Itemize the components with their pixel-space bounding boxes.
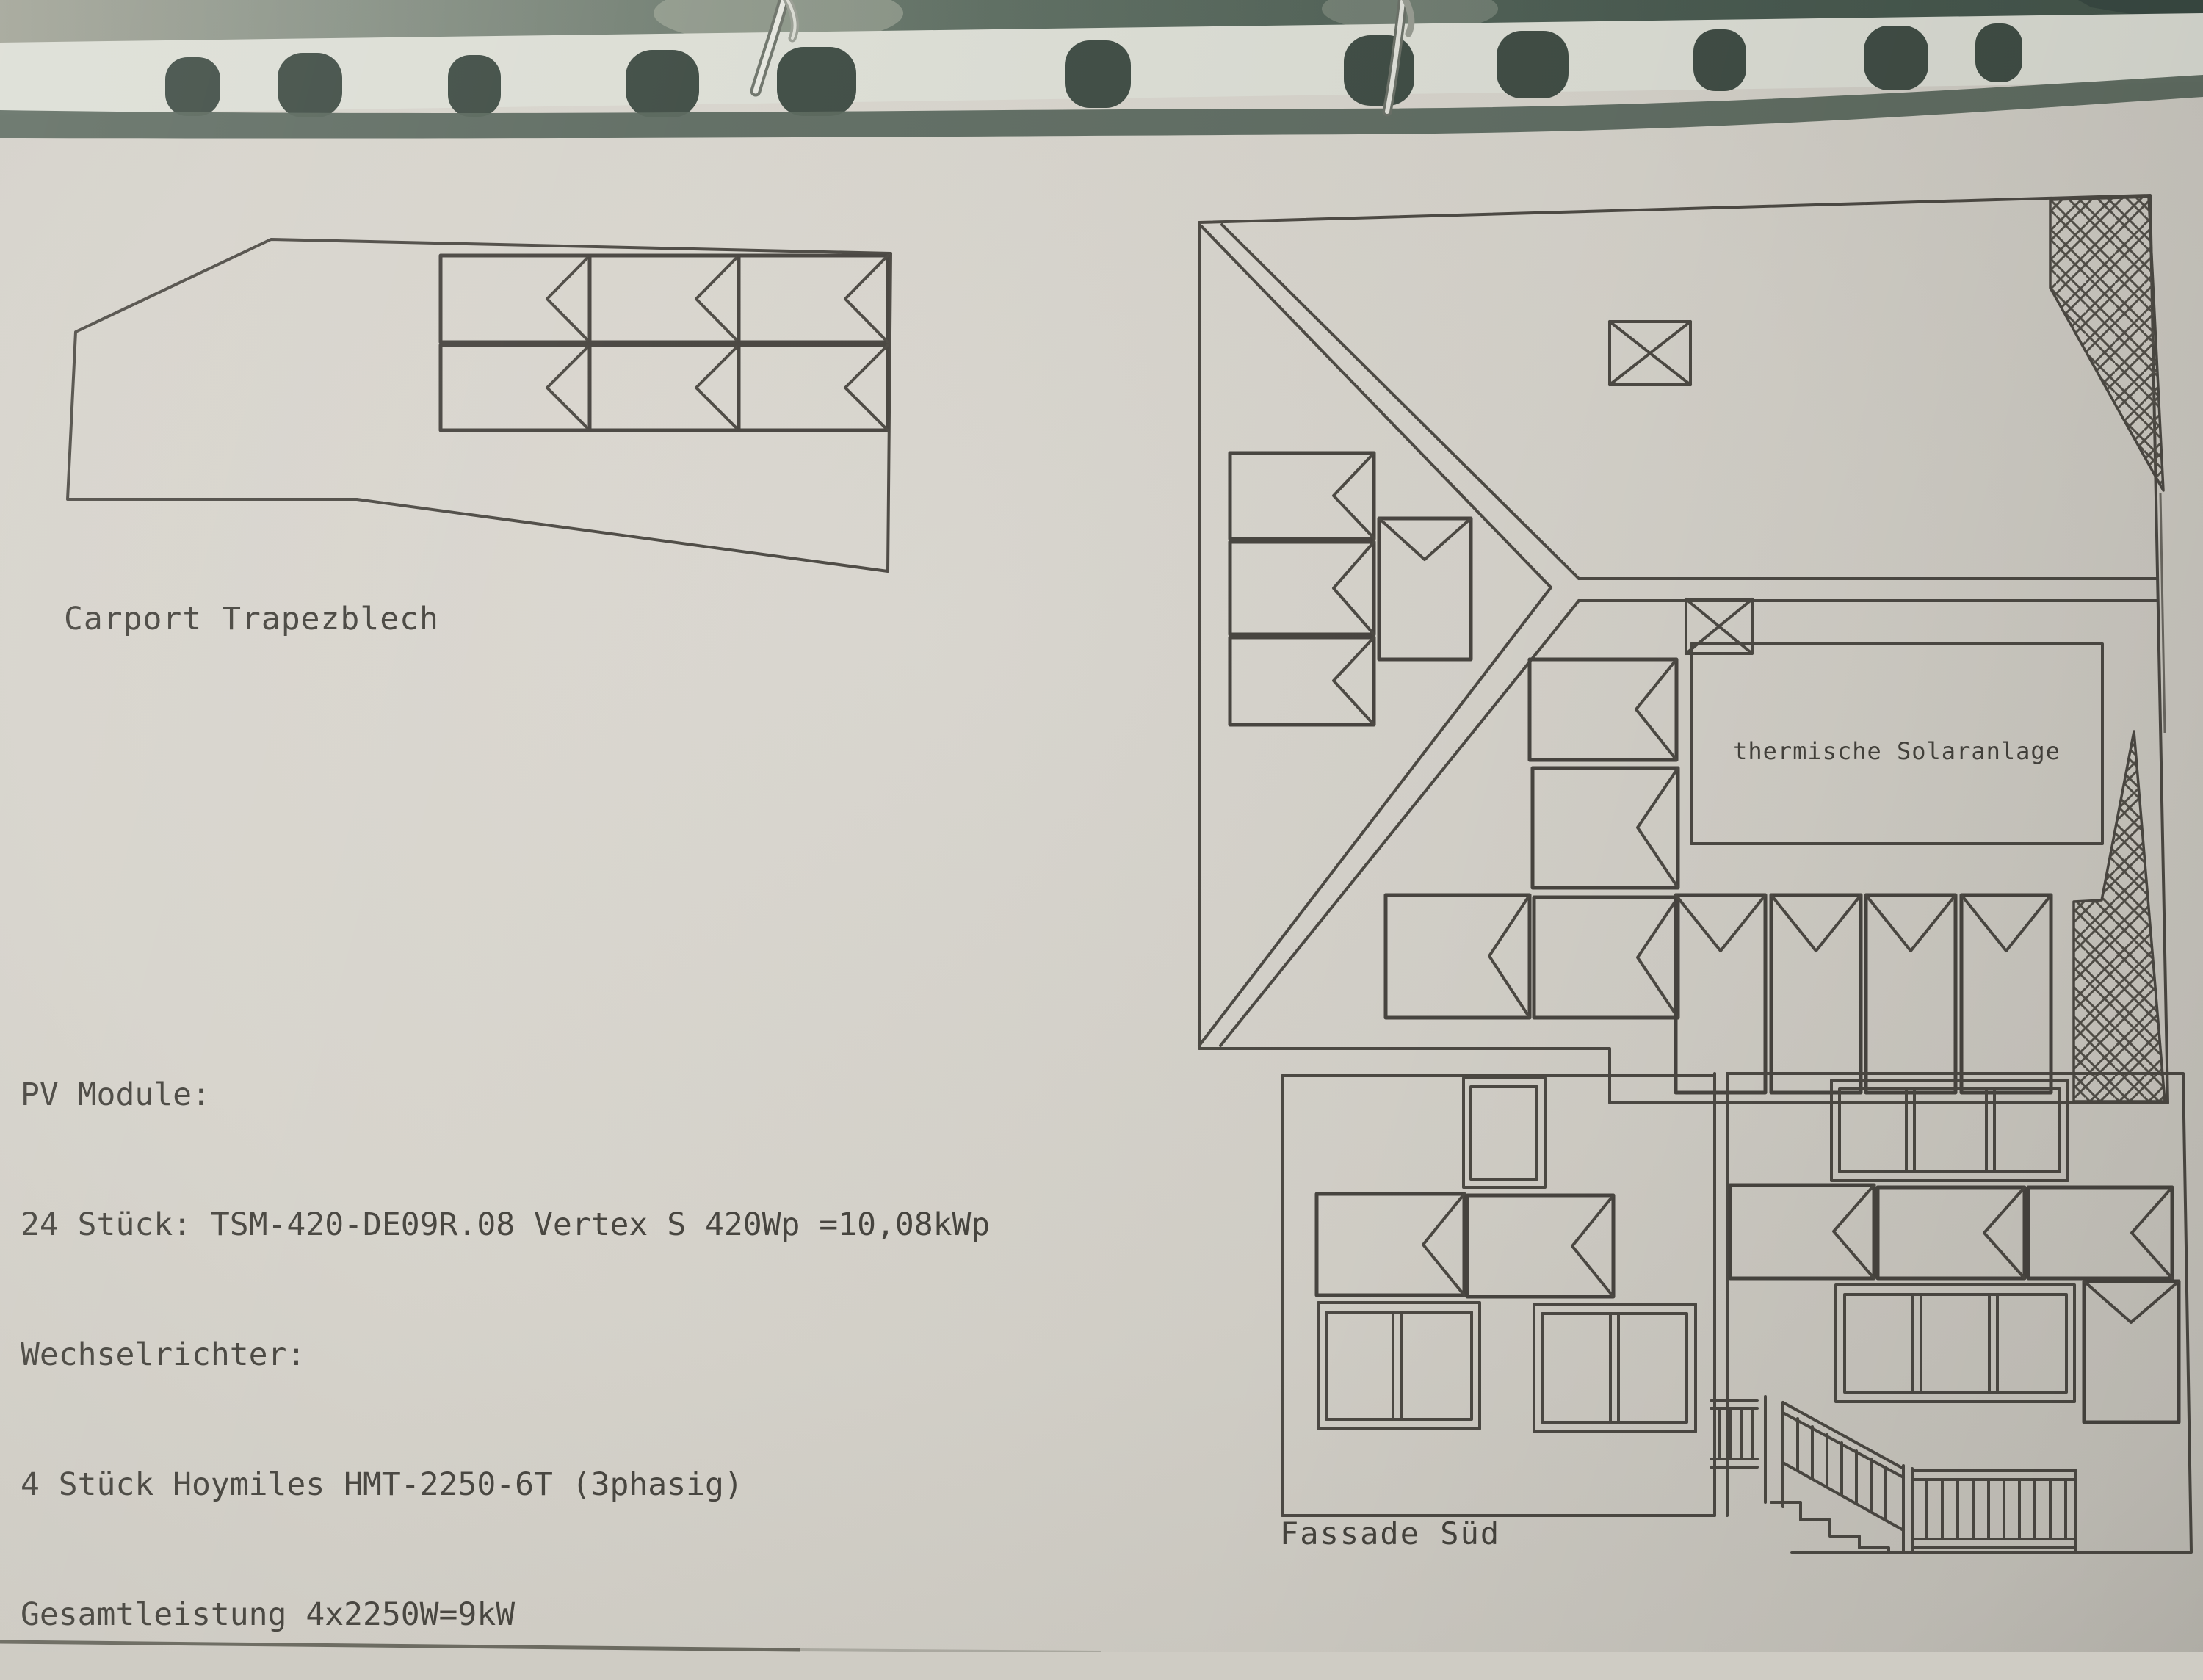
pv-info-block: PV Module: 24 Stück: TSM-420-DE09R.08 Ve…	[21, 987, 990, 1680]
pv-module	[1771, 895, 1861, 1093]
binder-hole	[1864, 26, 1928, 90]
carport-plan	[68, 239, 891, 571]
window	[1464, 1078, 1545, 1187]
facade-south	[1282, 1073, 2191, 1552]
window	[1534, 1304, 1696, 1432]
binder-hole	[278, 53, 342, 117]
pv-module	[1379, 518, 1471, 659]
photo-of-binder-page: { "labels": { "carport": "Carport Trapez…	[0, 0, 2203, 1652]
pv-module	[1533, 768, 1678, 888]
pv-info-line: PV Module:	[21, 1073, 990, 1117]
facade-wall	[1715, 1073, 1727, 1516]
pv-module	[2028, 1187, 2172, 1278]
pv-module	[1534, 897, 1678, 1018]
window	[1836, 1285, 2074, 1402]
binder-hole	[448, 55, 501, 117]
pv-module	[1866, 895, 1956, 1093]
window	[1831, 1080, 2068, 1181]
binder-hole	[1693, 29, 1746, 91]
pv-module	[590, 345, 739, 430]
roof-hatched-area	[2074, 731, 2165, 1101]
pv-info-line: Gesamtleistung 4x2250W=9kW	[21, 1593, 990, 1637]
roof-outline	[1199, 195, 2168, 1103]
carport-outline	[68, 239, 891, 571]
binder-hole	[1065, 40, 1131, 108]
pv-module	[1530, 659, 1676, 760]
roof-xbox	[1610, 322, 1690, 385]
pv-module	[1730, 1185, 1874, 1278]
pv-module	[1230, 637, 1374, 725]
pv-info-line: Wechselrichter:	[21, 1333, 990, 1377]
roof-hatched-area	[2050, 197, 2163, 490]
binder-hole	[1975, 23, 2022, 82]
pv-module	[1230, 542, 1374, 634]
stairs-railing	[1711, 1397, 2076, 1552]
pv-module	[441, 345, 590, 430]
pv-info-line: 24 Stück: TSM-420-DE09R.08 Vertex S 420W…	[21, 1203, 990, 1247]
pv-module	[739, 345, 888, 430]
pv-module	[2084, 1281, 2179, 1422]
pv-module	[1961, 895, 2051, 1093]
pv-module	[1317, 1194, 1464, 1295]
binder-hole	[777, 47, 856, 116]
pv-module	[739, 256, 888, 342]
binder-header	[0, 0, 2203, 139]
binder-hole	[165, 57, 220, 116]
binder-hole	[1497, 31, 1569, 98]
pv-module	[1386, 895, 1530, 1018]
roof-plan	[1199, 195, 2168, 1103]
pv-info-line: 4 Stück Hoymiles HMT-2250-6T (3phasig)	[21, 1463, 990, 1507]
pv-module	[1467, 1195, 1613, 1297]
carport-label: Carport Trapezblech	[64, 601, 439, 637]
pv-module	[1878, 1187, 2025, 1278]
pv-module	[1230, 453, 1374, 539]
binder-hole	[1344, 35, 1414, 106]
facade-label: Fassade Süd	[1280, 1516, 1500, 1552]
binder-hole	[626, 50, 699, 117]
pv-module	[590, 256, 739, 342]
pv-module	[1676, 895, 1765, 1093]
window	[1318, 1303, 1480, 1429]
thermal-solar-label: thermische Solaranlage	[1691, 737, 2102, 765]
pv-module	[441, 256, 590, 342]
